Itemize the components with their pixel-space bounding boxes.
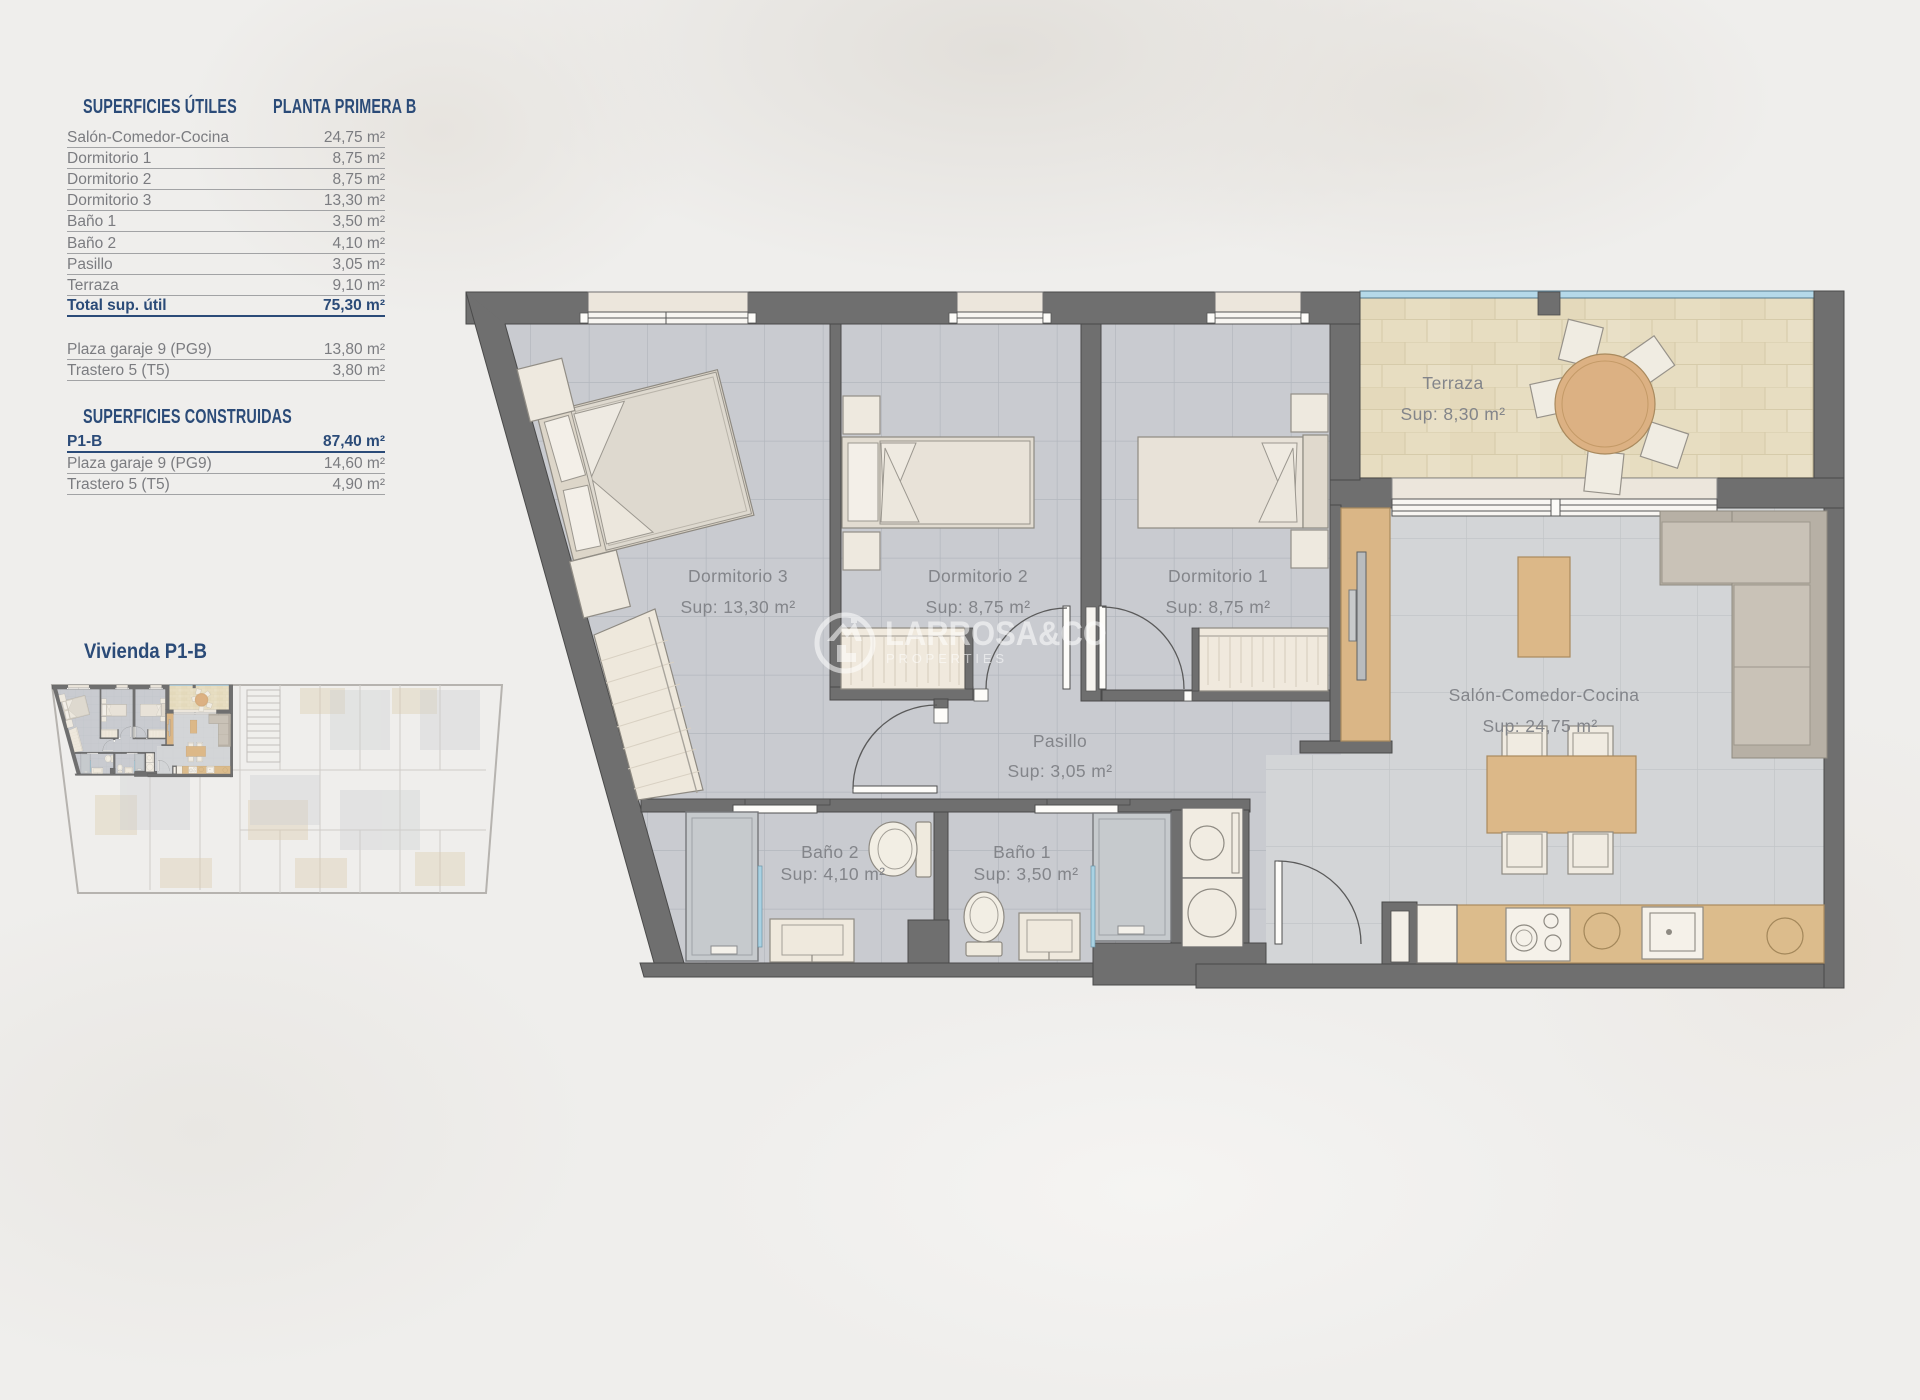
- svg-text:Sup: 8,30 m²: Sup: 8,30 m²: [1401, 404, 1506, 424]
- svg-text:Baño 2: Baño 2: [801, 842, 859, 862]
- svg-text:Sup: 4,10 m²: Sup: 4,10 m²: [781, 864, 886, 884]
- svg-text:Sup: 24,75 m²: Sup: 24,75 m²: [1482, 716, 1597, 736]
- svg-text:Sup: 8,75 m²: Sup: 8,75 m²: [1166, 597, 1271, 617]
- svg-text:Dormitorio 1: Dormitorio 1: [1168, 566, 1268, 586]
- svg-text:Sup: 8,75 m²: Sup: 8,75 m²: [926, 597, 1031, 617]
- svg-text:Dormitorio 2: Dormitorio 2: [928, 566, 1028, 586]
- svg-text:Salón-Comedor-Cocina: Salón-Comedor-Cocina: [1449, 685, 1640, 705]
- svg-text:Sup: 3,05 m²: Sup: 3,05 m²: [1008, 761, 1113, 781]
- svg-text:PROPERTIES: PROPERTIES: [886, 651, 1010, 666]
- svg-text:Sup: 13,30 m²: Sup: 13,30 m²: [680, 597, 795, 617]
- svg-text:Terraza: Terraza: [1422, 373, 1483, 393]
- svg-text:LARROSA&CO: LARROSA&CO: [885, 615, 1107, 653]
- svg-text:Sup: 3,50 m²: Sup: 3,50 m²: [974, 864, 1079, 884]
- svg-text:Pasillo: Pasillo: [1033, 731, 1087, 751]
- svg-text:Baño 1: Baño 1: [993, 842, 1051, 862]
- svg-text:Dormitorio 3: Dormitorio 3: [688, 566, 788, 586]
